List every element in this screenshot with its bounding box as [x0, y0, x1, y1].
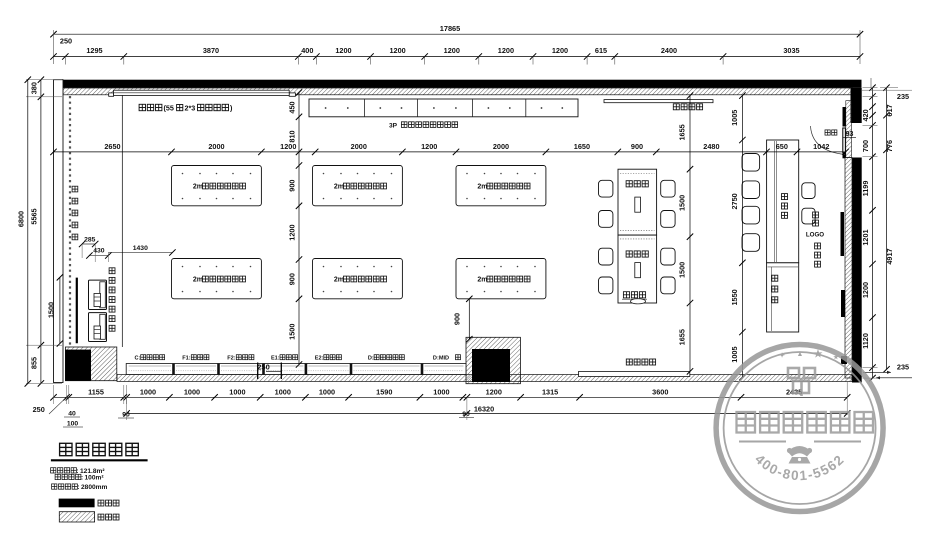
- svg-text:2m: 2m: [477, 277, 487, 284]
- svg-text:900: 900: [288, 180, 297, 192]
- svg-text:1200: 1200: [552, 46, 568, 55]
- svg-text:(55: (55: [164, 103, 174, 112]
- svg-text:900: 900: [631, 142, 643, 151]
- svg-text:★: ★: [814, 349, 823, 360]
- svg-text:1500: 1500: [678, 262, 687, 278]
- svg-text:D:: D:: [368, 356, 374, 362]
- svg-text:2480: 2480: [703, 142, 719, 151]
- svg-text:3035: 3035: [783, 46, 799, 55]
- svg-text:✦: ✦: [779, 352, 785, 360]
- svg-text:40: 40: [68, 411, 76, 418]
- svg-text:5565: 5565: [29, 208, 38, 224]
- svg-text:250: 250: [33, 405, 45, 414]
- svg-text::: :: [78, 484, 80, 491]
- svg-text:1295: 1295: [86, 46, 102, 55]
- svg-text:1500: 1500: [288, 324, 297, 340]
- svg-text:1550: 1550: [730, 289, 739, 305]
- svg-text:1201: 1201: [861, 229, 870, 245]
- svg-text:615: 615: [595, 46, 607, 55]
- svg-text:776: 776: [885, 140, 894, 152]
- svg-text:1200: 1200: [486, 388, 502, 397]
- svg-text:C:: C:: [135, 356, 141, 362]
- svg-text:1000: 1000: [229, 388, 245, 397]
- svg-text:2m: 2m: [334, 277, 344, 284]
- svg-text:100: 100: [67, 421, 79, 428]
- svg-text::: :: [77, 468, 79, 475]
- svg-text:2000: 2000: [351, 142, 367, 151]
- svg-text:650: 650: [776, 142, 788, 151]
- svg-text:F2:: F2:: [227, 356, 236, 362]
- svg-text:1200: 1200: [421, 142, 437, 151]
- svg-text:3P: 3P: [389, 122, 398, 129]
- svg-text:1005: 1005: [730, 110, 739, 126]
- svg-text:2m: 2m: [334, 184, 344, 191]
- svg-text:2m: 2m: [193, 277, 203, 284]
- svg-text:1000: 1000: [433, 388, 449, 397]
- svg-text:1120: 1120: [861, 333, 870, 349]
- svg-text:400: 400: [301, 46, 313, 55]
- svg-text:855: 855: [29, 357, 38, 369]
- svg-text:93: 93: [846, 131, 854, 138]
- svg-text:250: 250: [60, 37, 72, 46]
- svg-text:LOGO: LOGO: [806, 232, 824, 239]
- svg-text:1200: 1200: [498, 46, 514, 55]
- svg-text:235: 235: [897, 92, 909, 101]
- svg-text:1500: 1500: [47, 302, 56, 318]
- svg-text:17865: 17865: [440, 24, 461, 33]
- svg-text:250: 250: [257, 362, 270, 371]
- svg-text:1655: 1655: [678, 329, 687, 345]
- svg-text:1000: 1000: [140, 388, 156, 397]
- svg-text:1199: 1199: [861, 181, 870, 197]
- svg-text:▲: ▲: [797, 351, 804, 358]
- svg-text:D:MID: D:MID: [433, 356, 449, 362]
- svg-text:1200: 1200: [861, 282, 870, 298]
- svg-text:1005: 1005: [730, 346, 739, 362]
- svg-text:2m: 2m: [193, 184, 203, 191]
- svg-text:3600: 3600: [652, 388, 668, 397]
- svg-text:2650: 2650: [104, 142, 120, 151]
- svg-text:1650: 1650: [574, 142, 590, 151]
- svg-text:2400: 2400: [661, 46, 677, 55]
- svg-text:1000: 1000: [184, 388, 200, 397]
- svg-text:285: 285: [84, 237, 96, 244]
- svg-text:380: 380: [29, 82, 38, 94]
- svg-text:1590: 1590: [376, 388, 392, 397]
- svg-text:1000: 1000: [275, 388, 291, 397]
- svg-text:1200: 1200: [288, 224, 297, 240]
- svg-text:E2:: E2:: [315, 356, 324, 362]
- svg-text:617: 617: [885, 104, 894, 116]
- svg-text:1155: 1155: [88, 388, 104, 397]
- svg-text:700: 700: [861, 140, 870, 152]
- svg-text:100m²: 100m²: [85, 474, 105, 481]
- svg-text:1430: 1430: [133, 245, 148, 252]
- svg-text:90: 90: [462, 411, 470, 418]
- svg-text:1000: 1000: [319, 388, 335, 397]
- svg-text:1500: 1500: [678, 195, 687, 211]
- svg-text:420: 420: [861, 109, 870, 121]
- svg-text:900: 900: [453, 313, 462, 325]
- svg-text:6800: 6800: [16, 211, 25, 227]
- svg-text:E1:: E1:: [271, 356, 280, 362]
- svg-text:1315: 1315: [542, 388, 558, 397]
- svg-text::: :: [81, 474, 83, 481]
- svg-text:90: 90: [122, 412, 130, 419]
- svg-text:4917: 4917: [885, 248, 894, 264]
- svg-text:2000: 2000: [208, 142, 224, 151]
- svg-text:810: 810: [288, 130, 297, 142]
- svg-text:2750: 2750: [730, 193, 739, 209]
- svg-text:3870: 3870: [203, 46, 219, 55]
- svg-text:1042: 1042: [813, 142, 829, 151]
- svg-text:235: 235: [897, 363, 909, 372]
- svg-text:1655: 1655: [678, 124, 687, 140]
- svg-text:★: ★: [833, 354, 839, 361]
- svg-text:2000: 2000: [493, 142, 509, 151]
- svg-text:1200: 1200: [335, 46, 351, 55]
- svg-text:16320: 16320: [474, 405, 494, 414]
- svg-text:1200: 1200: [389, 46, 405, 55]
- svg-text:450: 450: [288, 101, 297, 113]
- svg-text:900: 900: [288, 273, 297, 285]
- svg-text:F1:: F1:: [182, 356, 191, 362]
- svg-text:2800mm: 2800mm: [81, 484, 108, 491]
- svg-text:2*3: 2*3: [185, 103, 196, 112]
- svg-text:1200: 1200: [444, 46, 460, 55]
- svg-text:2m: 2m: [477, 184, 487, 191]
